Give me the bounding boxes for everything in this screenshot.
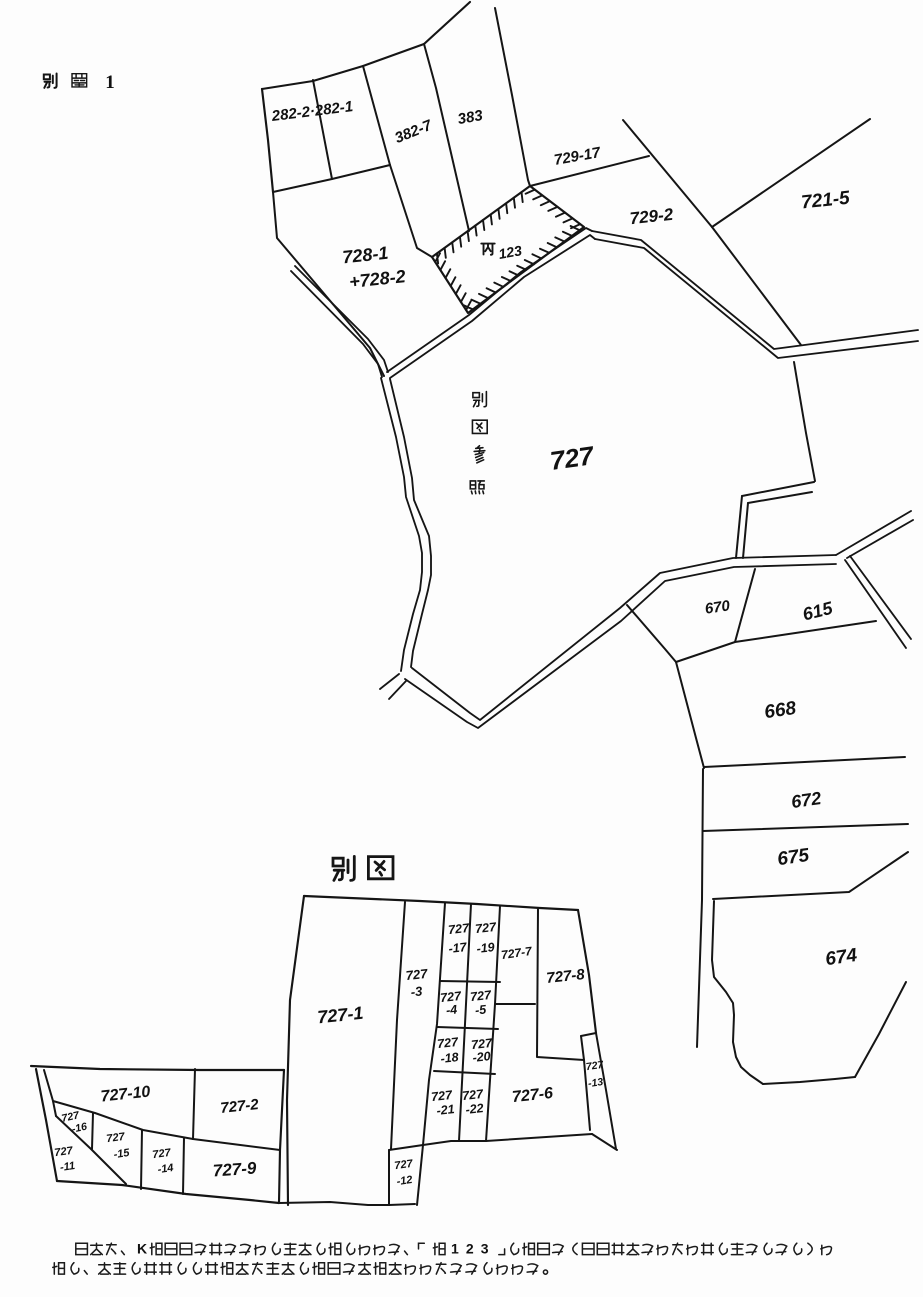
svg-text:-14: -14	[157, 1162, 174, 1176]
svg-text:727-6: 727-6	[511, 1085, 554, 1106]
svg-text:727-10: 727-10	[100, 1083, 151, 1105]
svg-text:727: 727	[152, 1147, 173, 1162]
svg-text:727-1: 727-1	[316, 1003, 364, 1028]
svg-text:615: 615	[801, 598, 836, 625]
svg-text:727: 727	[405, 966, 429, 983]
svg-text:727-9: 727-9	[212, 1158, 257, 1180]
svg-text:383: 383	[456, 107, 484, 128]
svg-text:3: 3	[481, 1241, 489, 1257]
svg-text:-21: -21	[436, 1102, 455, 1118]
svg-text:728-1: 728-1	[341, 243, 389, 268]
svg-text:727: 727	[394, 1158, 415, 1173]
svg-text:668: 668	[763, 698, 798, 723]
svg-text:727: 727	[436, 1035, 459, 1051]
svg-text:727-2: 727-2	[220, 1096, 261, 1117]
svg-text:2: 2	[466, 1241, 474, 1257]
svg-text:123: 123	[497, 242, 523, 262]
svg-text:729-2: 729-2	[629, 205, 675, 228]
svg-text:-18: -18	[440, 1050, 459, 1066]
svg-text:672: 672	[790, 788, 823, 812]
svg-text:-4: -4	[445, 1002, 458, 1017]
svg-text:675: 675	[776, 845, 811, 870]
svg-text:282-2·282-1: 282-2·282-1	[270, 98, 354, 125]
svg-text:670: 670	[704, 597, 732, 617]
svg-text:-20: -20	[472, 1049, 491, 1065]
svg-text:727: 727	[54, 1145, 75, 1160]
svg-text:382-7: 382-7	[392, 117, 435, 147]
svg-text:-19: -19	[476, 940, 495, 956]
svg-text:-5: -5	[474, 1002, 488, 1017]
svg-text:-11: -11	[59, 1160, 76, 1174]
svg-text:-17: -17	[448, 940, 468, 956]
svg-text:-13: -13	[587, 1076, 604, 1090]
svg-text:727: 727	[106, 1131, 127, 1146]
svg-text:727: 727	[469, 988, 492, 1004]
svg-text:-15: -15	[113, 1147, 131, 1161]
svg-text:-12: -12	[396, 1174, 413, 1188]
svg-text:K: K	[137, 1241, 147, 1257]
svg-text:727: 727	[474, 920, 497, 936]
svg-text:674: 674	[824, 945, 859, 970]
svg-text:-22: -22	[465, 1101, 484, 1117]
svg-text:-3: -3	[410, 983, 424, 999]
svg-text:1: 1	[451, 1241, 459, 1257]
svg-text:1: 1	[105, 72, 115, 93]
svg-text:-16: -16	[71, 1121, 88, 1136]
svg-text:721-5: 721-5	[800, 188, 851, 214]
svg-text:727-7: 727-7	[500, 944, 534, 962]
svg-text:729-17: 729-17	[553, 144, 603, 169]
svg-text:+728-2: +728-2	[348, 266, 406, 292]
svg-text:727-8: 727-8	[546, 966, 587, 987]
svg-text:727: 727	[548, 440, 597, 476]
svg-text:727: 727	[447, 921, 470, 937]
